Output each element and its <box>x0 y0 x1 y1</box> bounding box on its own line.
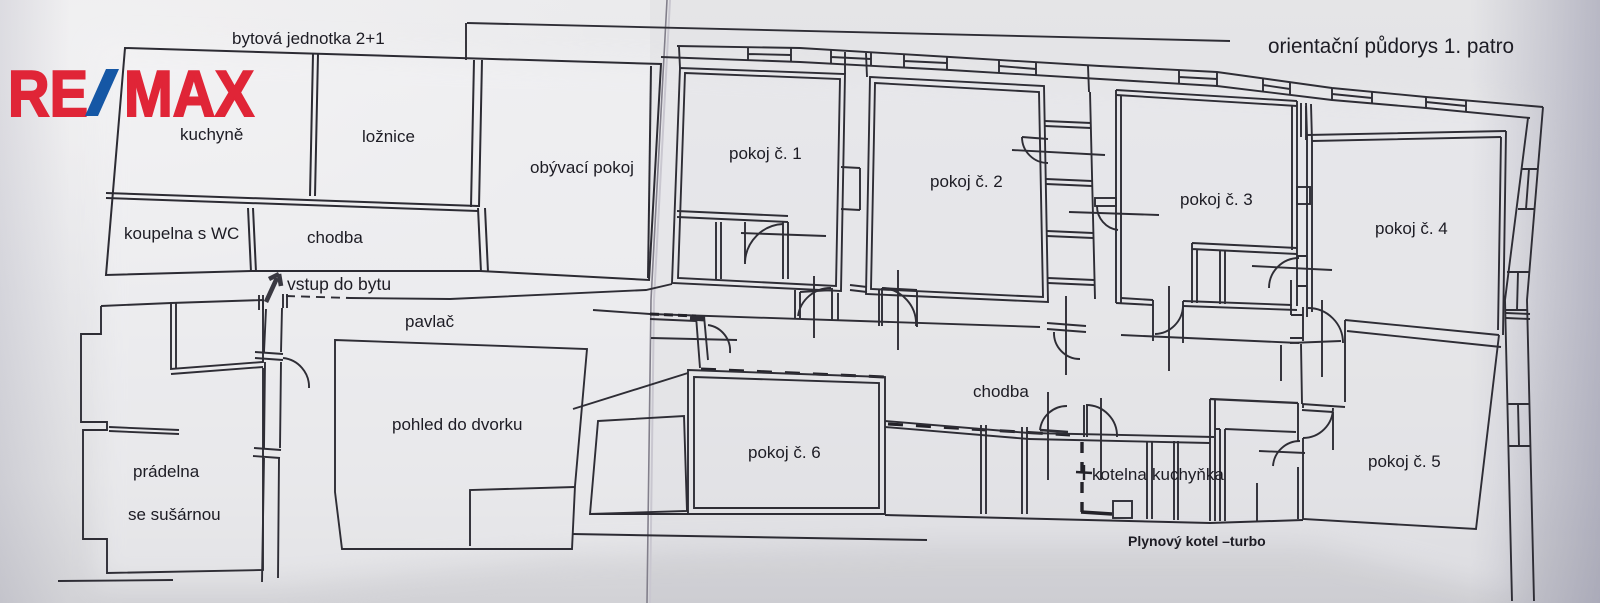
svg-text:MAX: MAX <box>124 57 254 130</box>
svg-text:pohled do dvorku: pohled do dvorku <box>392 415 522 434</box>
svg-text:kuchyňka: kuchyňka <box>1152 465 1224 484</box>
svg-text:pokoj č. 5: pokoj č. 5 <box>1368 452 1441 471</box>
svg-text:pokoj č. 1: pokoj č. 1 <box>729 144 802 163</box>
svg-text:chodba: chodba <box>973 382 1029 401</box>
svg-text:RE: RE <box>8 57 88 130</box>
svg-text:chodba: chodba <box>307 228 363 247</box>
svg-text:kuchyně: kuchyně <box>180 125 243 144</box>
svg-text:pokoj č. 2: pokoj č. 2 <box>930 172 1003 191</box>
svg-text:prádelna: prádelna <box>133 462 200 481</box>
svg-text:pokoj č. 4: pokoj č. 4 <box>1375 219 1448 238</box>
svg-text:vstup do bytu: vstup do bytu <box>287 274 391 294</box>
svg-text:kotelna: kotelna <box>1092 465 1147 484</box>
svg-text:pokoj č. 3: pokoj č. 3 <box>1180 190 1253 209</box>
svg-text:koupelna s WC: koupelna s WC <box>124 224 239 243</box>
svg-text:bytová jednotka 2+1: bytová jednotka 2+1 <box>232 29 385 48</box>
svg-text:pokoj č. 6: pokoj č. 6 <box>748 443 821 462</box>
svg-text:orientační půdorys 1. patro: orientační půdorys 1. patro <box>1268 34 1514 58</box>
svg-text:ložnice: ložnice <box>362 127 415 146</box>
svg-text:Plynový kotel –turbo: Plynový kotel –turbo <box>1128 533 1266 549</box>
svg-text:se sušárnou: se sušárnou <box>128 505 221 524</box>
svg-text:obývací pokoj: obývací pokoj <box>530 158 634 177</box>
svg-text:pavlač: pavlač <box>405 312 455 331</box>
